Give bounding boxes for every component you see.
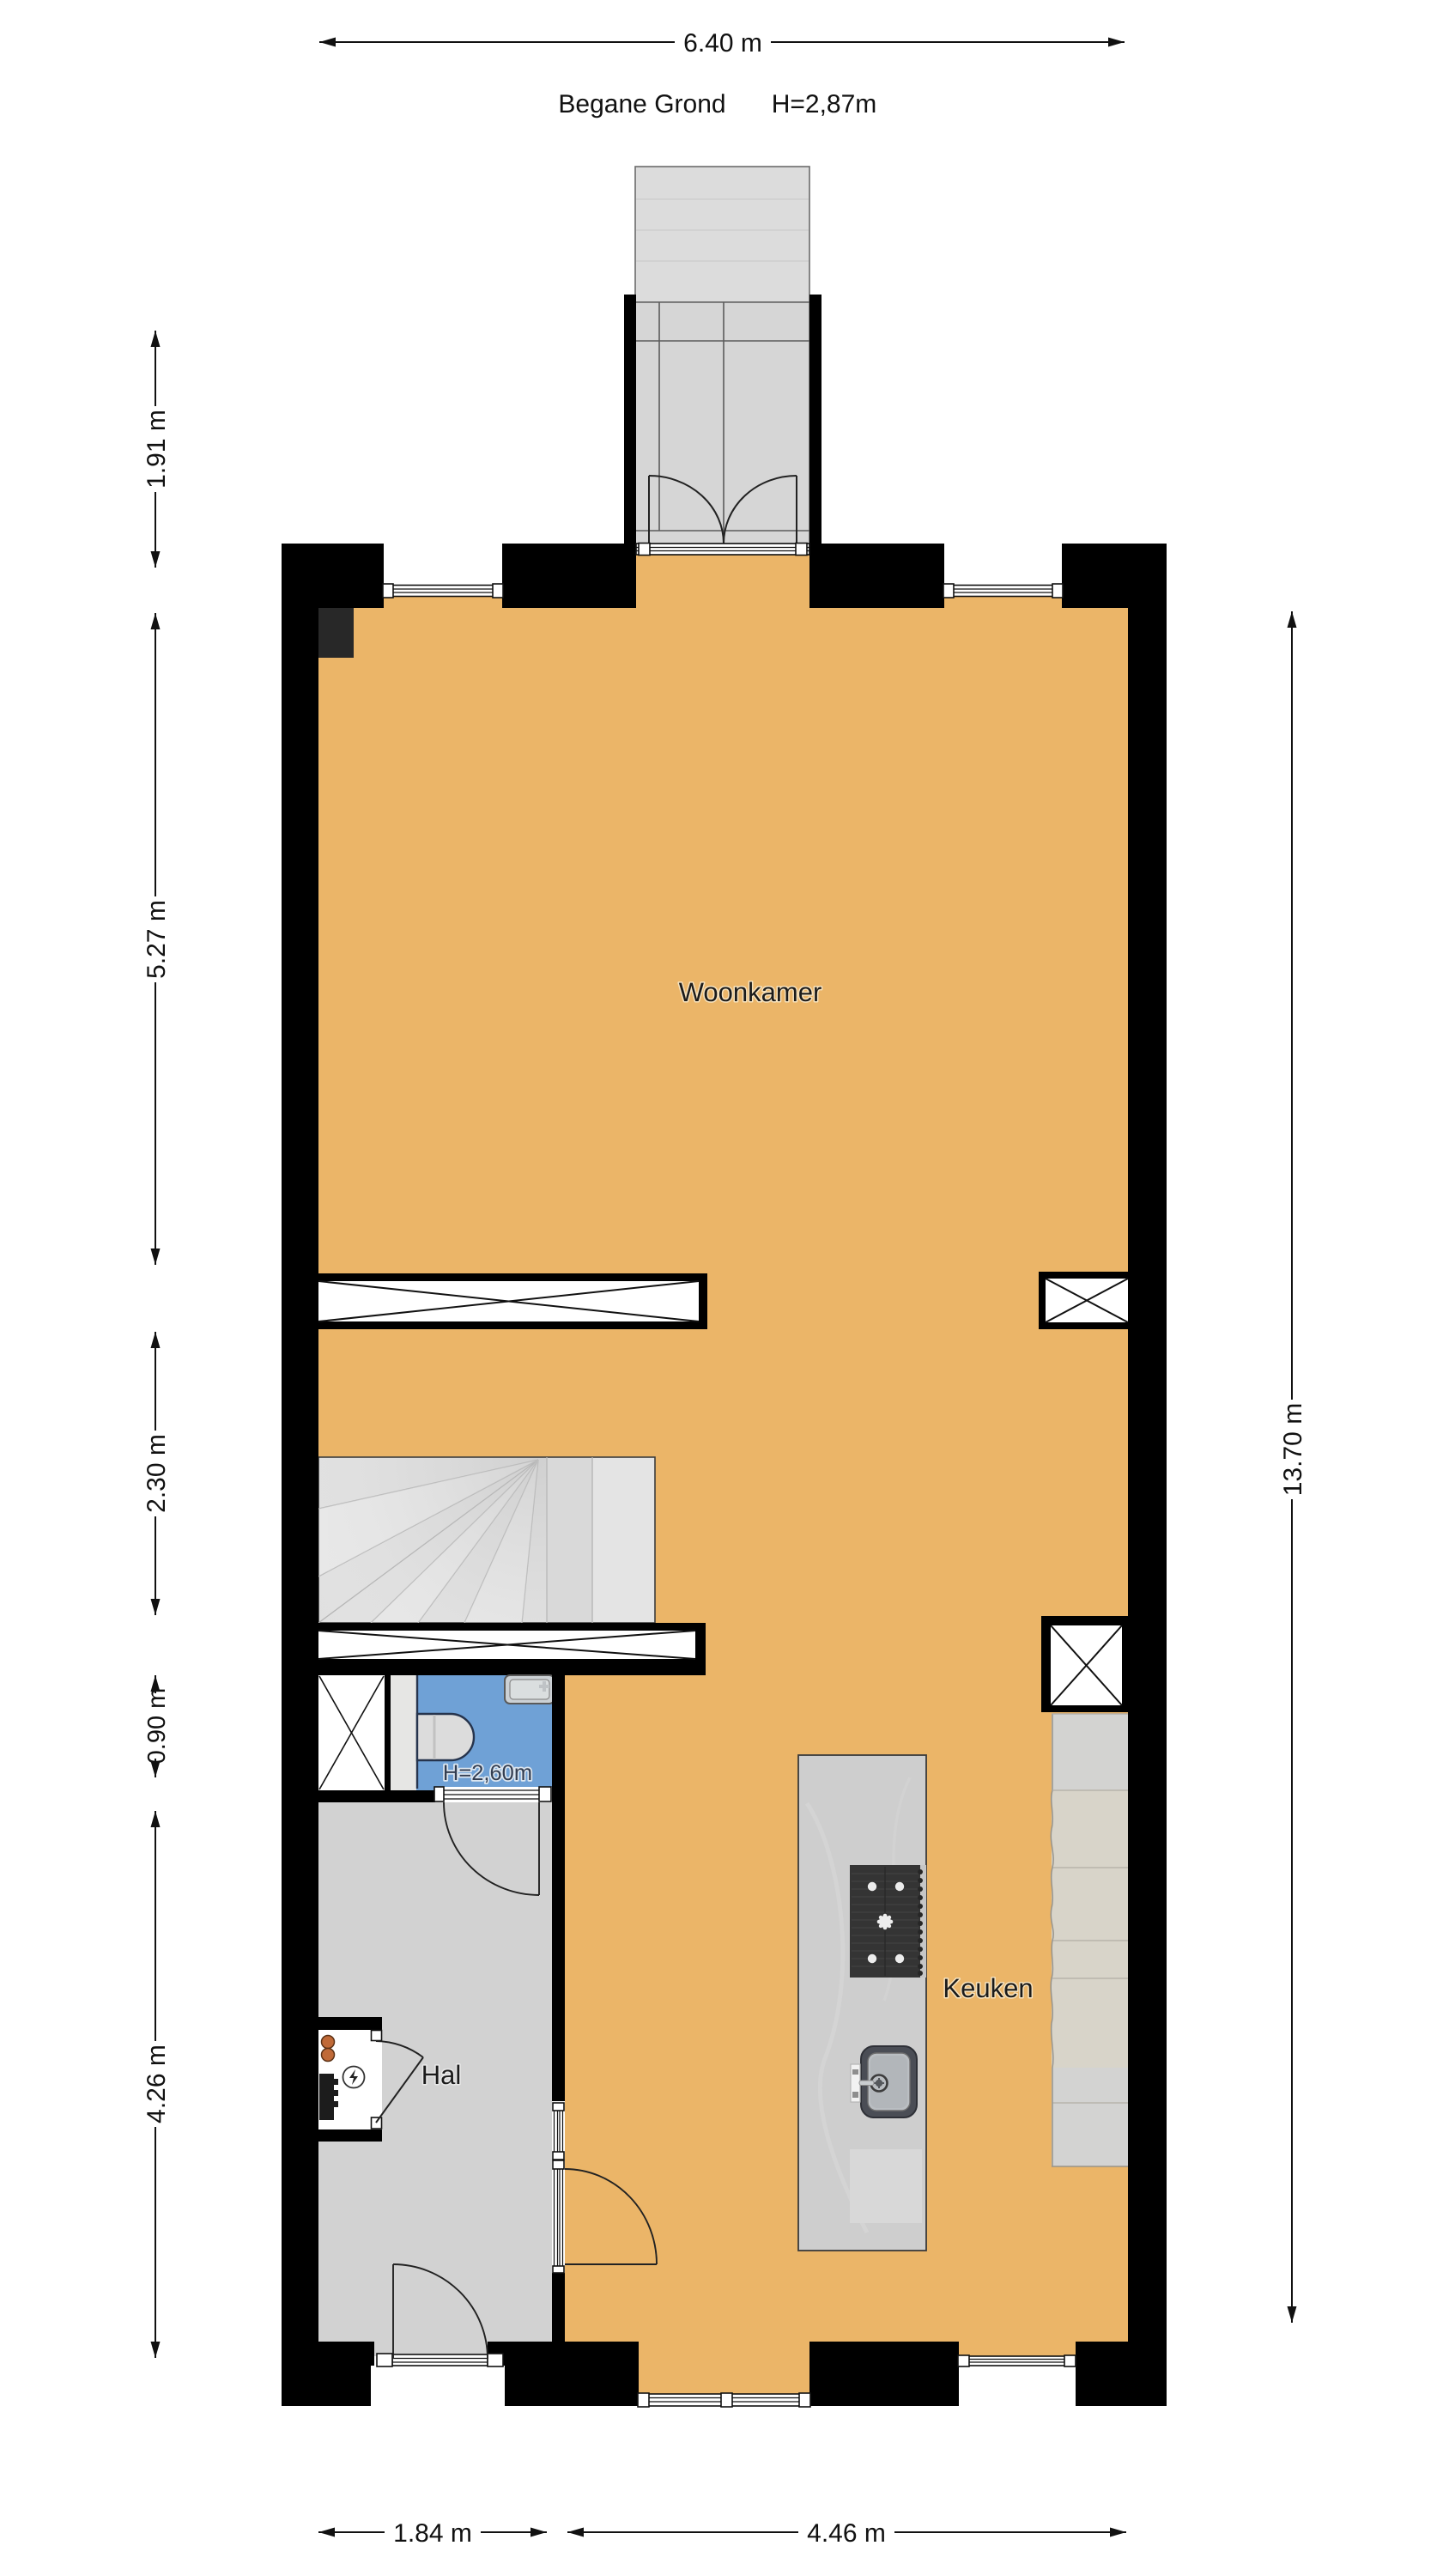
svg-text:0.90 m: 0.90 m xyxy=(143,1688,171,1765)
svg-text:13.70 m: 13.70 m xyxy=(1279,1403,1307,1496)
svg-text:4.46 m: 4.46 m xyxy=(807,2519,886,2548)
svg-text:H=2,87m: H=2,87m xyxy=(772,90,877,118)
svg-text:H=2,60m: H=2,60m xyxy=(443,1761,532,1785)
svg-text:Hal: Hal xyxy=(421,2060,462,2090)
svg-text:Woonkamer: Woonkamer xyxy=(679,977,822,1007)
svg-text:Begane Grond: Begane Grond xyxy=(558,90,725,118)
svg-text:2.30 m: 2.30 m xyxy=(142,1434,171,1513)
svg-text:1.91 m: 1.91 m xyxy=(142,410,171,489)
svg-text:Keuken: Keuken xyxy=(943,1973,1033,2003)
svg-text:4.26 m: 4.26 m xyxy=(142,2044,171,2123)
svg-text:5.27 m: 5.27 m xyxy=(142,900,171,979)
svg-text:6.40 m: 6.40 m xyxy=(683,29,762,58)
svg-text:1.84 m: 1.84 m xyxy=(393,2519,472,2548)
